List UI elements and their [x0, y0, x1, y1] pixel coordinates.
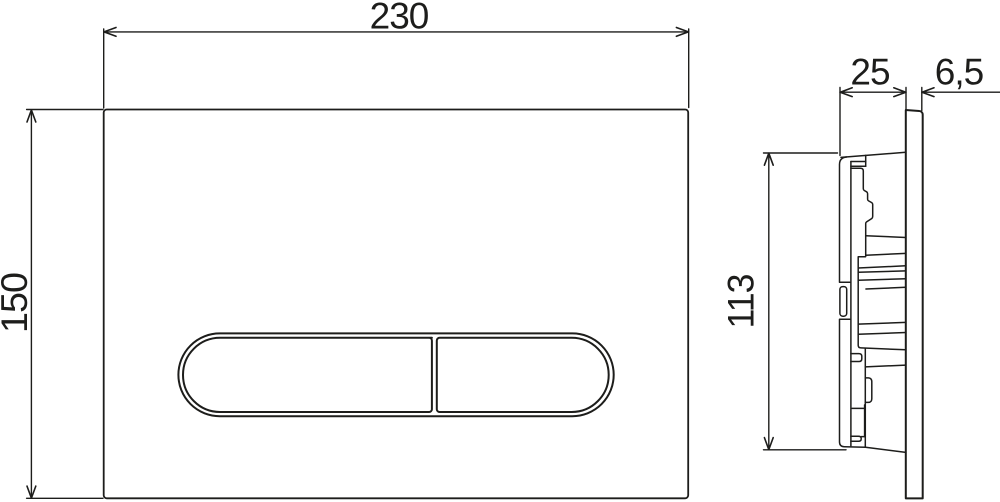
- svg-text:25: 25: [850, 52, 890, 93]
- svg-text:113: 113: [721, 275, 762, 329]
- svg-text:230: 230: [370, 0, 429, 36]
- svg-text:6,5: 6,5: [935, 52, 984, 93]
- svg-text:150: 150: [0, 273, 35, 333]
